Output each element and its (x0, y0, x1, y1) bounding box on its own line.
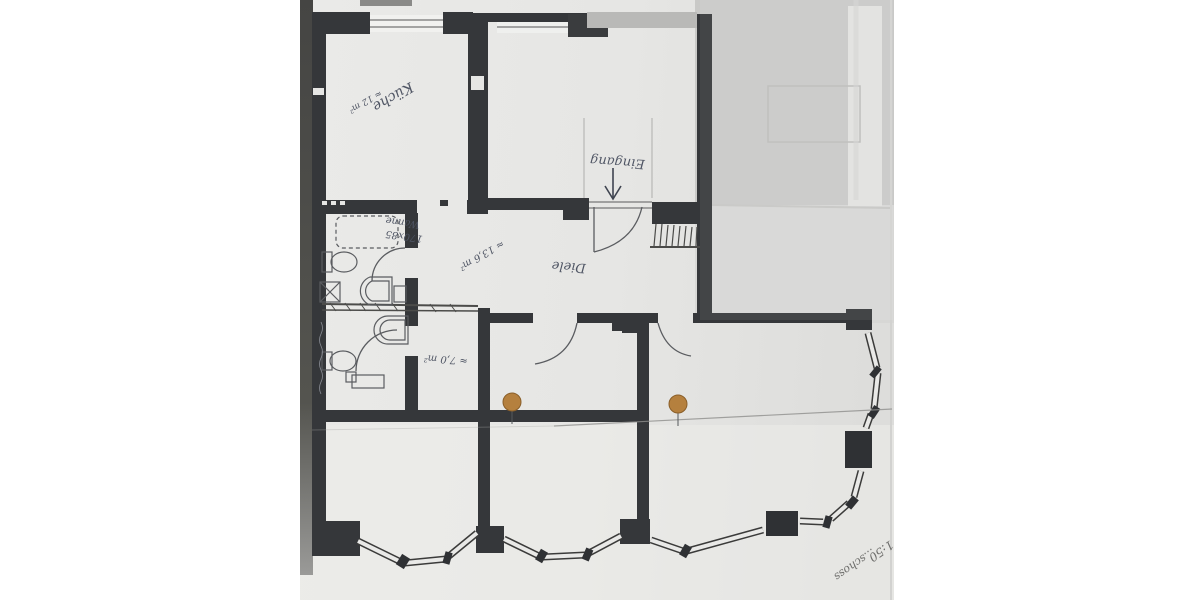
page-edge (300, 0, 313, 575)
orange-marker-dot (669, 395, 687, 413)
room-label-diele: Diele (551, 258, 587, 275)
plan-canvas: Küche ≈ 12 m² Eingang Diele ≈ 13,6 m² Wa… (0, 0, 1200, 600)
floor-plan-photo: { "document": { "kind_label": "Grundriss… (0, 0, 1200, 600)
photo-glare (700, 0, 893, 320)
orange-marker-dot (503, 393, 521, 411)
